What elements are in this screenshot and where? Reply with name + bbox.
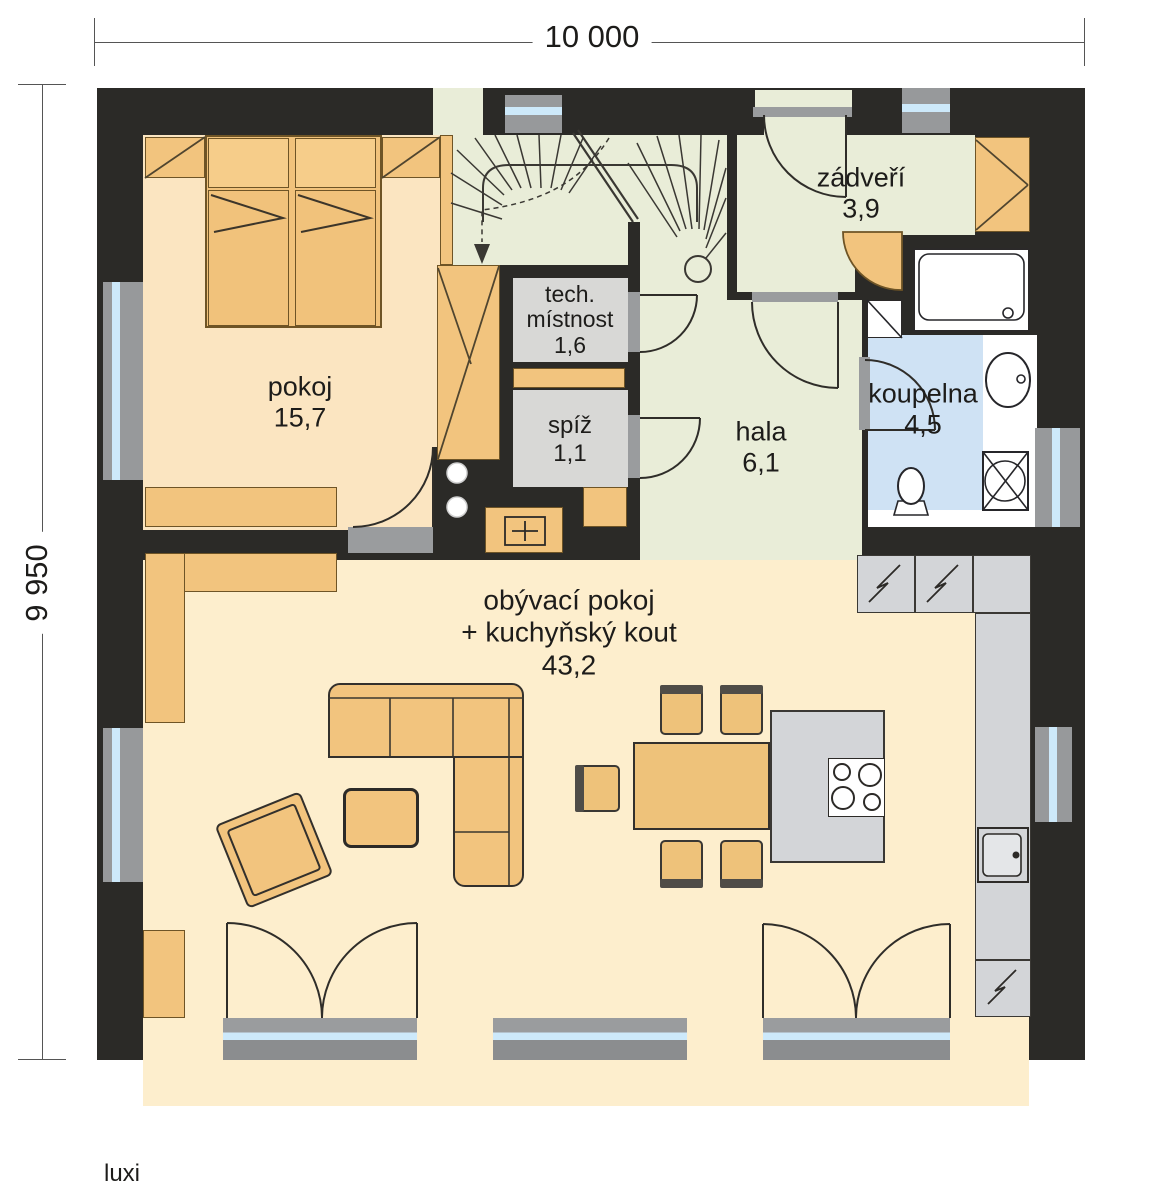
room-name: + kuchyňský kout — [461, 617, 677, 649]
dimension-height-label: 9 950 — [19, 532, 55, 634]
stair-railing — [483, 165, 697, 222]
stair-arrow-icon — [474, 244, 490, 264]
stair-walk-line — [482, 138, 609, 242]
room-name: spíž — [548, 412, 592, 440]
room-label-hala: hala 6,1 — [735, 417, 786, 480]
room-area: 1,1 — [548, 440, 592, 468]
tall-unit-zigzag-icon — [869, 565, 900, 602]
washbasin-icon — [986, 353, 1030, 407]
tall-unit-zigzag-icon — [988, 970, 1016, 1004]
dimension-tick — [1084, 18, 1085, 66]
shower-icon — [867, 300, 902, 338]
floor-plan: pokoj 15,7 tech. místnost 1,6 spíž 1,1 h… — [97, 88, 1085, 1060]
room-area: 43,2 — [461, 649, 677, 681]
room-name: obývací pokoj — [461, 584, 677, 616]
burner-icon — [832, 787, 854, 809]
room-label-spiz: spíž 1,1 — [548, 412, 592, 468]
room-area: 6,1 — [735, 448, 786, 479]
floor-plan-page: 10 000 9 950 luxi — [0, 0, 1166, 1200]
room-name: hala — [735, 417, 786, 448]
burner-icon — [859, 764, 881, 786]
sofa-seat-lines — [328, 698, 524, 885]
room-label-obyvaci: obývací pokoj + kuchyňský kout 43,2 — [461, 584, 677, 681]
bed-blanket-fold-icon — [211, 195, 370, 232]
room-name: zádveří — [817, 163, 906, 194]
room-label-koupelna: koupelna 4,5 — [868, 379, 978, 442]
staircase-treads — [451, 130, 726, 282]
brand-label: luxi — [104, 1160, 140, 1188]
french-door — [763, 924, 950, 1018]
door-swing-panel — [843, 232, 902, 290]
room-name: tech. — [527, 282, 614, 307]
room-name: pokoj — [268, 372, 333, 403]
room-label-pokoj: pokoj 15,7 — [268, 372, 333, 435]
dimension-tick — [18, 1059, 66, 1060]
dimension-tick — [94, 18, 95, 66]
room-label-zadveri: zádveří 3,9 — [817, 163, 906, 226]
room-name: místnost — [527, 307, 614, 332]
burner-icon — [864, 794, 880, 810]
tall-unit-zigzag-icon — [927, 565, 958, 602]
room-label-tech: tech. místnost 1,6 — [527, 282, 614, 358]
room-name: koupelna — [868, 379, 978, 410]
room-area: 1,6 — [527, 333, 614, 358]
plan-linework — [97, 88, 1085, 1060]
room-area: 4,5 — [868, 410, 978, 441]
chimney-flue-icon — [447, 463, 467, 517]
newel-post — [685, 256, 711, 282]
room-area: 15,7 — [268, 403, 333, 434]
fireplace-icon — [505, 517, 545, 545]
dimension-tick — [18, 84, 66, 85]
french-door — [227, 923, 417, 1018]
door-swings — [227, 115, 950, 1018]
dimension-width-label: 10 000 — [533, 19, 652, 55]
room-area: 3,9 — [817, 194, 906, 225]
burner-icon — [834, 764, 850, 780]
section-cut-line — [573, 130, 638, 222]
kitchen-detail-icons — [832, 565, 1021, 1004]
